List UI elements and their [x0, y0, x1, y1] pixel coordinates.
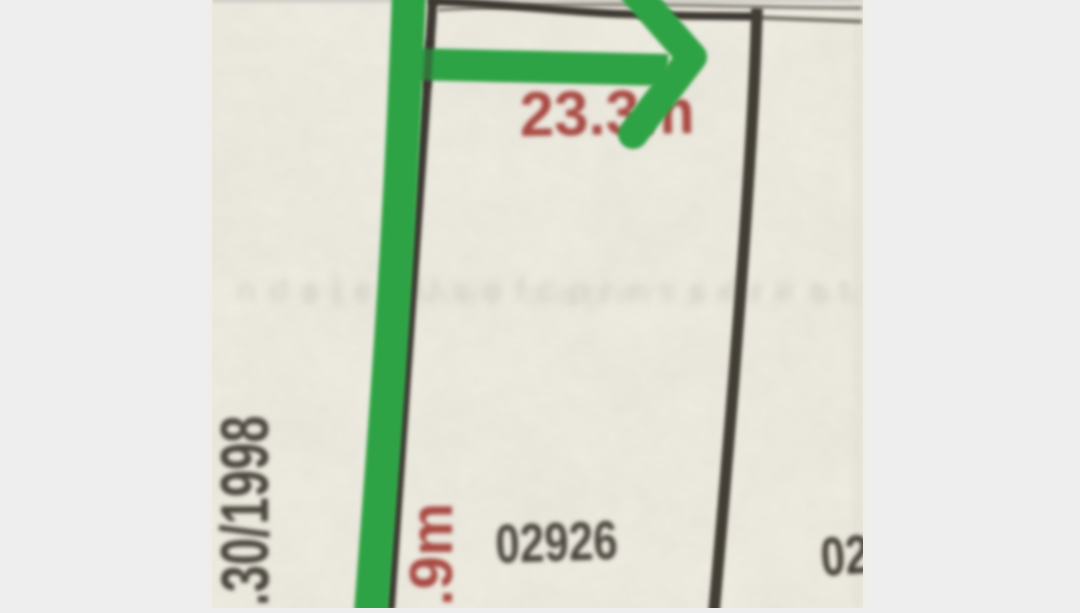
svg-text:02926: 02926: [494, 509, 618, 575]
svg-text:.9m: .9m: [398, 503, 465, 606]
svg-text:.30/1998: .30/1998: [206, 415, 283, 606]
